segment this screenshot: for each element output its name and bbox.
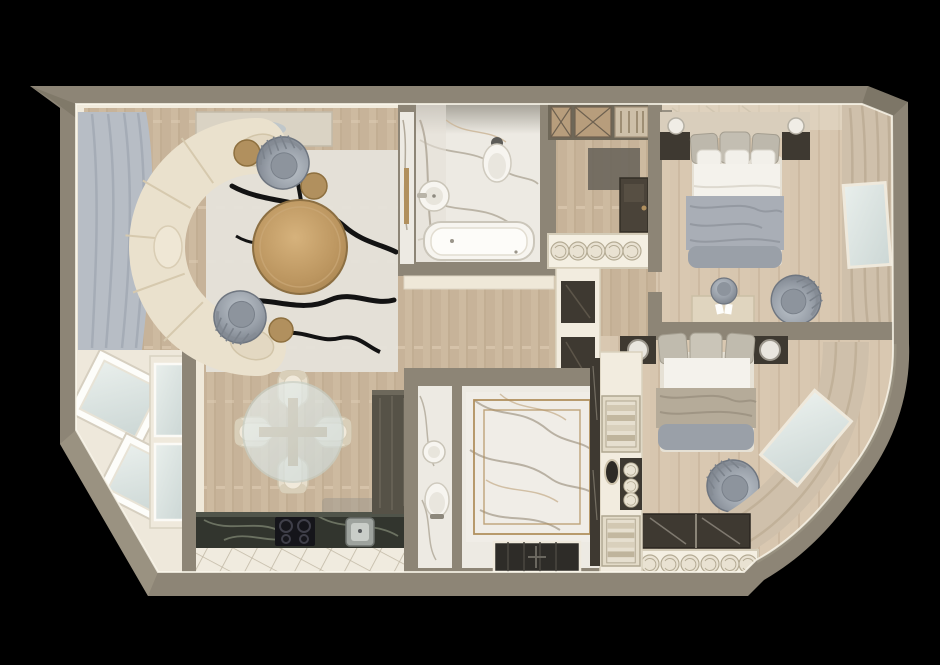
kitchen-partition-wall — [182, 348, 198, 582]
kitchen-sink — [346, 518, 374, 546]
wall-sconce-left — [668, 118, 684, 134]
guest-wc — [418, 386, 452, 568]
bathroom-main — [398, 104, 556, 289]
floor-plan-render — [0, 0, 940, 665]
round-glass-table — [243, 382, 343, 482]
bed-footer — [658, 424, 754, 450]
bed-sheet — [664, 358, 750, 392]
x-front-closet-small — [551, 107, 571, 137]
gold-towel-rail — [404, 168, 409, 224]
marble-panel — [466, 392, 598, 542]
cooktop — [275, 517, 315, 546]
floor-plan-canvas — [0, 0, 940, 665]
pillows — [690, 132, 780, 167]
round-coffee-table — [253, 200, 347, 294]
faucet — [417, 193, 427, 198]
bathtub — [424, 222, 534, 260]
shoe-shelf — [548, 234, 652, 268]
bed-footer — [688, 246, 782, 268]
sofa-pillow — [154, 226, 182, 268]
bedroom1-left-wall-stub — [648, 292, 662, 324]
lamp-right — [760, 340, 780, 360]
shower-room — [462, 386, 602, 572]
bedroom-1 — [660, 104, 892, 334]
bed-2 — [656, 333, 756, 452]
display-cabinet — [615, 107, 648, 137]
curtains-bedroom1 — [842, 104, 892, 330]
towel-cubby-top — [602, 396, 640, 452]
bedroom1-left-wall — [648, 104, 662, 272]
entrance-door — [620, 178, 648, 232]
window-bedroom1 — [843, 183, 891, 268]
shower-tray — [494, 542, 580, 572]
blanket — [656, 388, 756, 428]
sliding-glass-wardrobe — [642, 514, 750, 548]
console-shelf — [404, 276, 554, 289]
central-block — [404, 352, 642, 582]
wall-sconce-right — [788, 118, 804, 134]
gold-side-table — [269, 318, 293, 342]
roll-cubby — [620, 458, 642, 510]
round-mirror — [605, 460, 619, 484]
marble-strip-living-side — [400, 112, 414, 264]
towel-cubby-bottom — [602, 516, 640, 566]
gold-side-table — [234, 140, 260, 166]
storage-column — [590, 352, 642, 582]
nightstand-left — [660, 132, 690, 160]
nightstand-right — [782, 132, 810, 160]
x-front-closet-large — [575, 107, 611, 137]
bed-1 — [686, 132, 784, 268]
